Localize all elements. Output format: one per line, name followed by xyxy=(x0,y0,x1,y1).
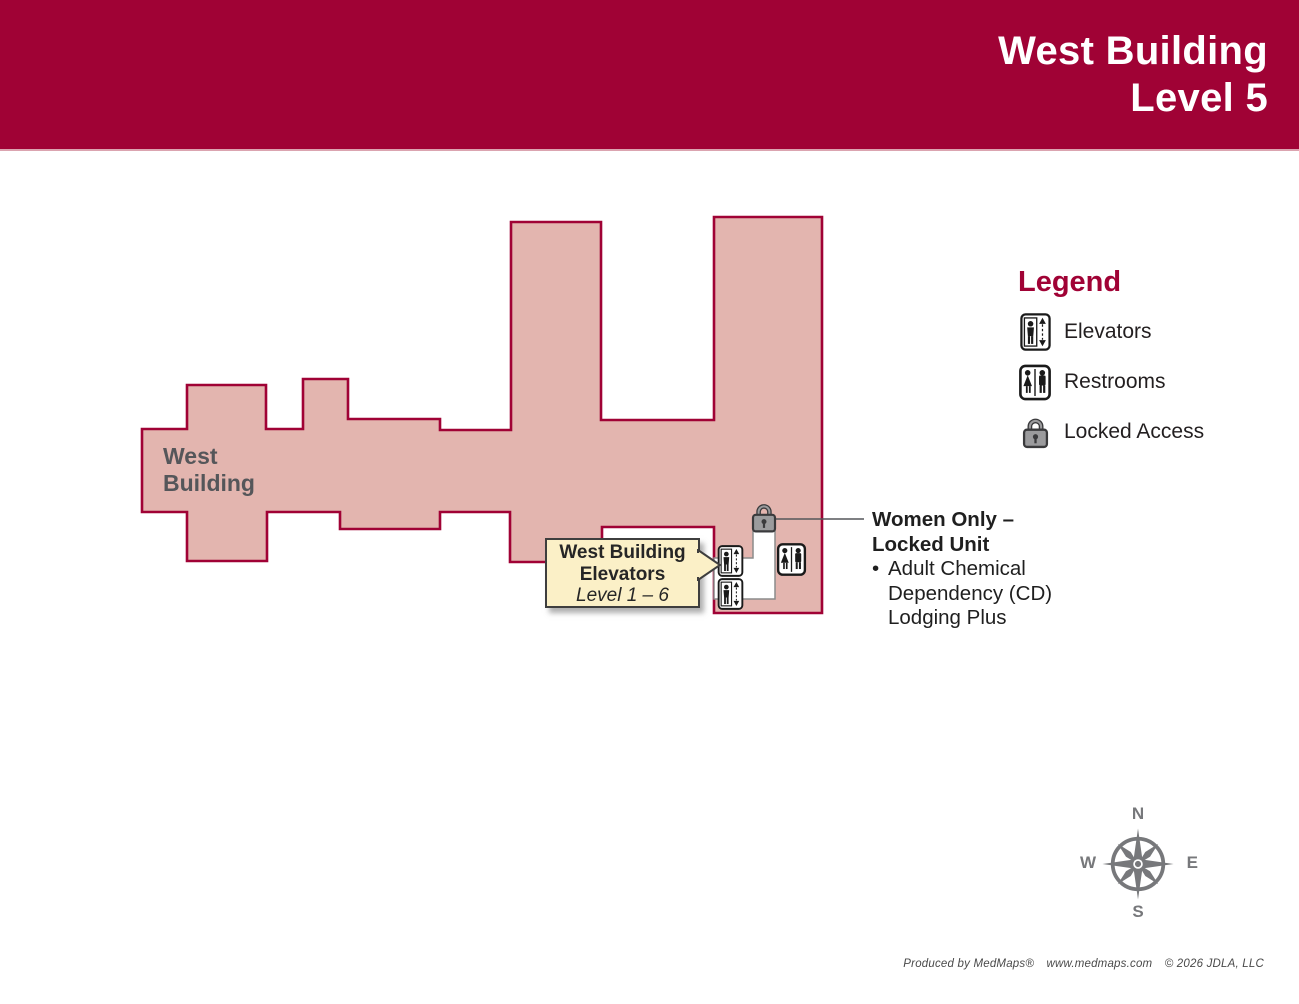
page: West Building Level 5 West Building xyxy=(0,0,1299,1004)
elevator-icon xyxy=(1018,313,1052,351)
compass-east-label: E xyxy=(1187,853,1198,873)
callout-line1: West Building xyxy=(547,542,698,564)
callout-subtitle: Level 1 – 6 xyxy=(547,585,698,607)
building-label-line2: Building xyxy=(163,470,255,497)
compass-rose: N S W E xyxy=(1076,802,1200,926)
footer-copyright: © 2026 JDLA, LLC xyxy=(1165,958,1264,970)
compass-north-label: N xyxy=(1076,804,1200,824)
elevator-callout: West Building Elevators Level 1 – 6 xyxy=(545,538,700,608)
lock-icon xyxy=(1018,416,1052,449)
legend-label-elevators: Elevators xyxy=(1064,320,1152,344)
annotation-title-line2: Locked Unit xyxy=(872,533,1087,558)
legend-label-locked-access: Locked Access xyxy=(1064,420,1204,444)
callout-line2: Elevators xyxy=(547,564,698,586)
annotation-bullet-item: • Adult Chemical Dependency (CD) Lodging… xyxy=(872,557,1087,631)
legend-label-restrooms: Restrooms xyxy=(1064,370,1166,394)
restroom-icon xyxy=(1018,364,1052,401)
bullet-line-3: Lodging Plus xyxy=(888,606,1007,629)
legend-item-restrooms: Restrooms xyxy=(1018,363,1258,401)
compass-star-icon xyxy=(1097,823,1179,905)
bullet-line-2: Dependency (CD) xyxy=(888,582,1052,605)
building-label: West Building xyxy=(163,443,255,497)
footer-website: www.medmaps.com xyxy=(1046,958,1152,970)
map-lock-icon xyxy=(751,502,777,533)
legend: Legend Elevators xyxy=(1018,266,1258,463)
callout-pointer xyxy=(697,549,721,581)
building-label-line1: West xyxy=(163,443,255,470)
map-elevator-icon-2 xyxy=(716,578,745,610)
locked-unit-annotation: Women Only – Locked Unit • Adult Chemica… xyxy=(872,508,1087,631)
bullet-dot: • xyxy=(872,557,888,631)
legend-item-elevators: Elevators xyxy=(1018,313,1258,351)
compass-south-label: S xyxy=(1076,902,1200,922)
legend-title: Legend xyxy=(1018,266,1258,298)
footer-credits: Produced by MedMaps® www.medmaps.com © 2… xyxy=(903,958,1264,970)
annotation-title-line1: Women Only – xyxy=(872,508,1087,533)
bullet-line-1: Adult Chemical xyxy=(888,557,1026,580)
footer-produced-by: Produced by MedMaps® xyxy=(903,958,1034,970)
map-restroom-icon xyxy=(776,543,807,576)
bullet-text: Adult Chemical Dependency (CD) Lodging P… xyxy=(888,557,1052,631)
compass-west-label: W xyxy=(1080,853,1096,873)
legend-item-locked-access: Locked Access xyxy=(1018,413,1258,451)
